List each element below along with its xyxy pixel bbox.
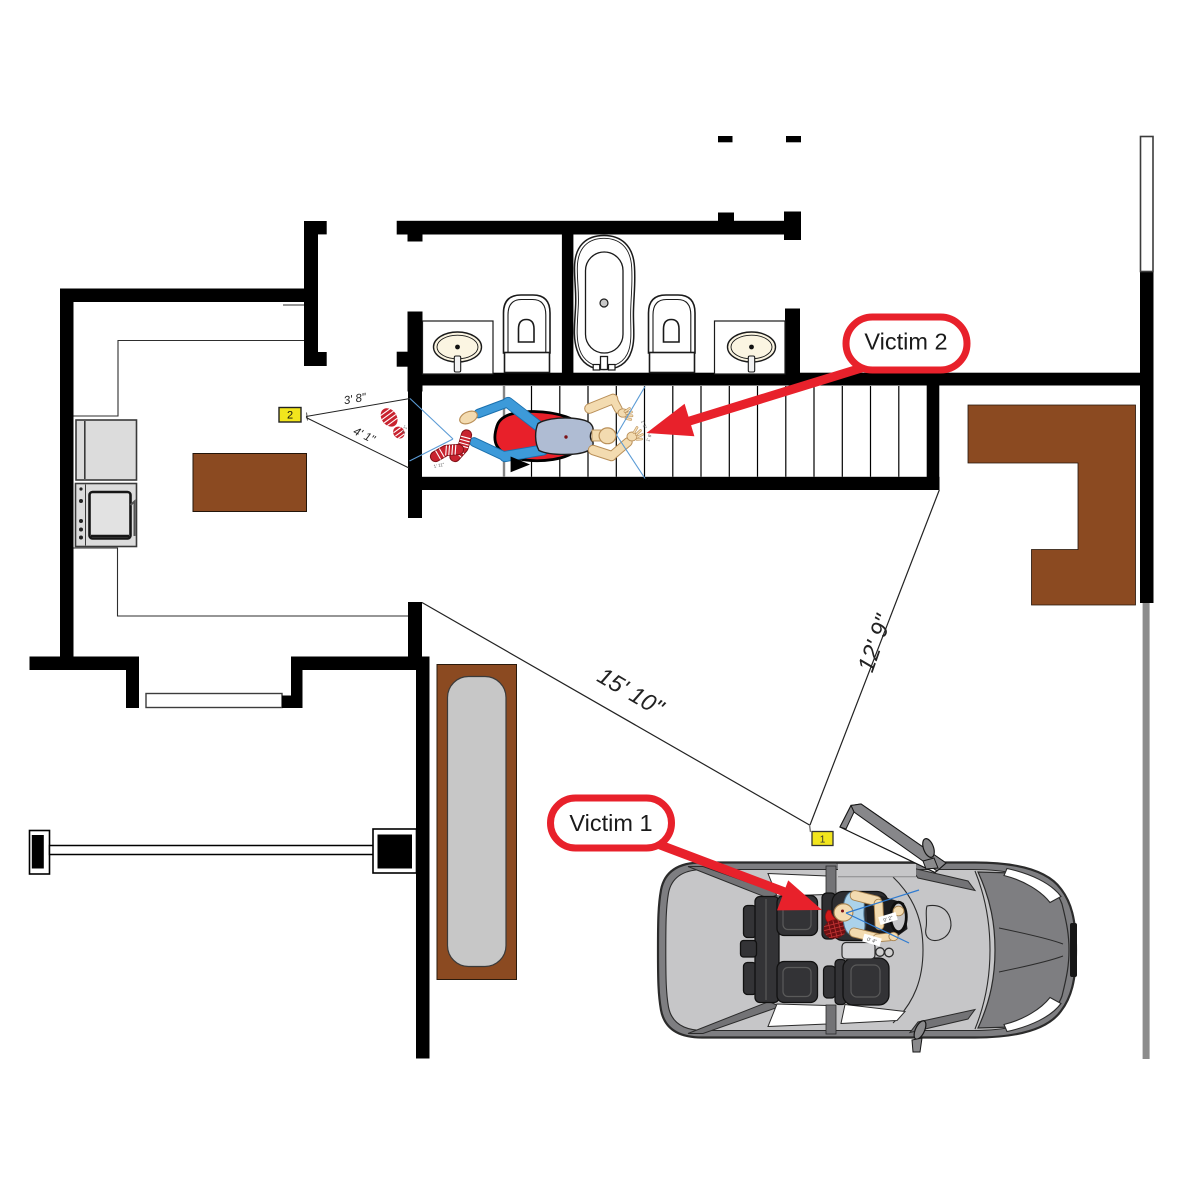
svg-text:Victim 1: Victim 1	[569, 810, 652, 836]
svg-text:Victim 2: Victim 2	[864, 329, 947, 355]
svg-text:2: 2	[287, 410, 293, 422]
svg-text:1: 1	[820, 835, 826, 846]
